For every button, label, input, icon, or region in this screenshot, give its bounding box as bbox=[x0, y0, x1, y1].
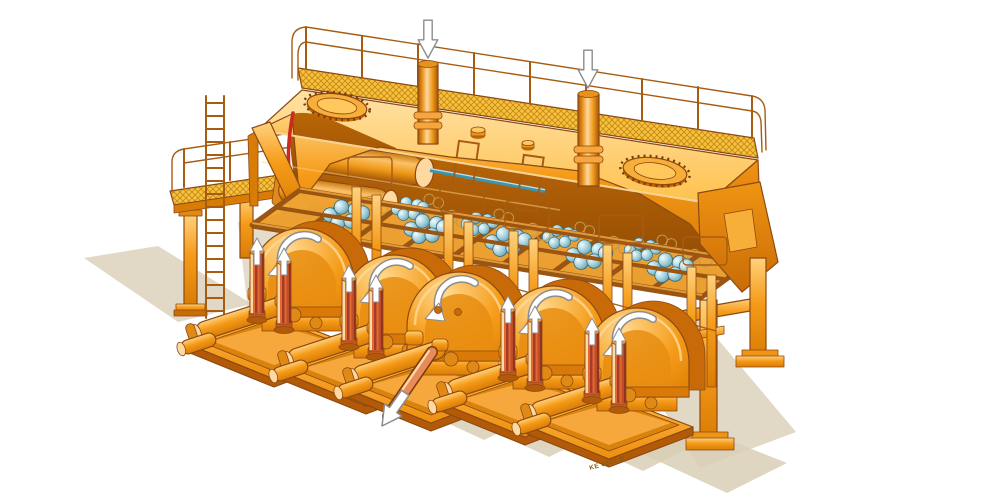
inlet-pipe bbox=[574, 90, 603, 186]
support-leg bbox=[750, 258, 766, 358]
tank-left-end bbox=[248, 130, 258, 206]
machine-cutaway-illustration: Putzmeister bbox=[0, 0, 1000, 500]
platform-column bbox=[184, 214, 197, 306]
top-nozzle-stub bbox=[522, 140, 534, 150]
inlet-pipe bbox=[414, 61, 442, 145]
access-ladder bbox=[206, 96, 224, 318]
top-nozzle-stub bbox=[471, 127, 485, 139]
pump-station-drawing: Putzmeister bbox=[0, 0, 1000, 500]
inlet-arrow-down-icon bbox=[418, 20, 438, 58]
arch-bolt-hole bbox=[435, 307, 442, 314]
arch-bolt-hole bbox=[455, 309, 462, 316]
